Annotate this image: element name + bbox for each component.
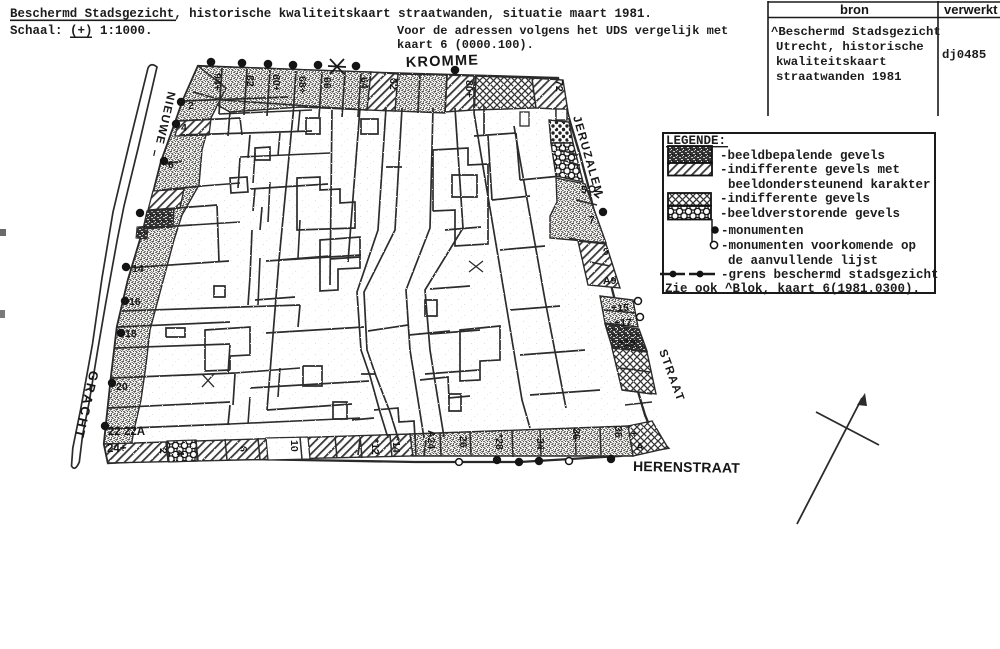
- svg-text:KROMME: KROMME: [406, 52, 480, 71]
- svg-text:de aanvullende lijst: de aanvullende lijst: [728, 254, 878, 268]
- svg-text:-beeldverstorende gevels: -beeldverstorende gevels: [720, 207, 900, 221]
- svg-text:bron: bron: [840, 2, 869, 17]
- svg-text:Zie ook ^Blok, kaart 6(1981.03: Zie ook ^Blok, kaart 6(1981.0300).: [665, 282, 920, 296]
- svg-text:straatwanden 1981: straatwanden 1981: [776, 70, 901, 84]
- svg-text:-beeldbepalende gevels: -beeldbepalende gevels: [720, 149, 885, 163]
- svg-text:Beschermd Stadsgezicht, histor: Beschermd Stadsgezicht, historische kwal…: [10, 7, 652, 21]
- svg-text:beeldondersteunend karakter: beeldondersteunend karakter: [728, 178, 931, 192]
- svg-text:Schaal: (+) 1:1000.: Schaal: (+) 1:1000.: [10, 24, 153, 38]
- svg-text:dj0485: dj0485: [942, 48, 986, 62]
- svg-text:verwerkt: verwerkt: [944, 2, 998, 17]
- svg-text:-monumenten: -monumenten: [721, 224, 804, 238]
- svg-text:^Beschermd Stadsgezicht: ^Beschermd Stadsgezicht: [771, 25, 941, 39]
- svg-text:14: 14: [132, 263, 144, 275]
- svg-text:-monumenten voorkomende op: -monumenten voorkomende op: [721, 239, 916, 253]
- svg-text:kaart 6 (0000.100).: kaart 6 (0000.100).: [397, 38, 534, 52]
- svg-text:6: 6: [168, 159, 174, 171]
- svg-text:HERENSTRAAT: HERENSTRAAT: [633, 458, 740, 476]
- svg-text:-indifferente gevels met: -indifferente gevels met: [720, 163, 900, 177]
- svg-text:-grens beschermd stadsgezicht: -grens beschermd stadsgezicht: [721, 268, 939, 282]
- svg-text:16: 16: [129, 296, 141, 308]
- svg-text:-indifferente gevels: -indifferente gevels: [720, 192, 870, 206]
- svg-text:18: 18: [125, 328, 137, 340]
- svg-text:Voor de adressen volgens het U: Voor de adressen volgens het UDS vergeli…: [397, 24, 728, 38]
- svg-text:kwaliteitskaart: kwaliteitskaart: [776, 55, 887, 69]
- svg-text:Utrecht, historische: Utrecht, historische: [776, 40, 924, 54]
